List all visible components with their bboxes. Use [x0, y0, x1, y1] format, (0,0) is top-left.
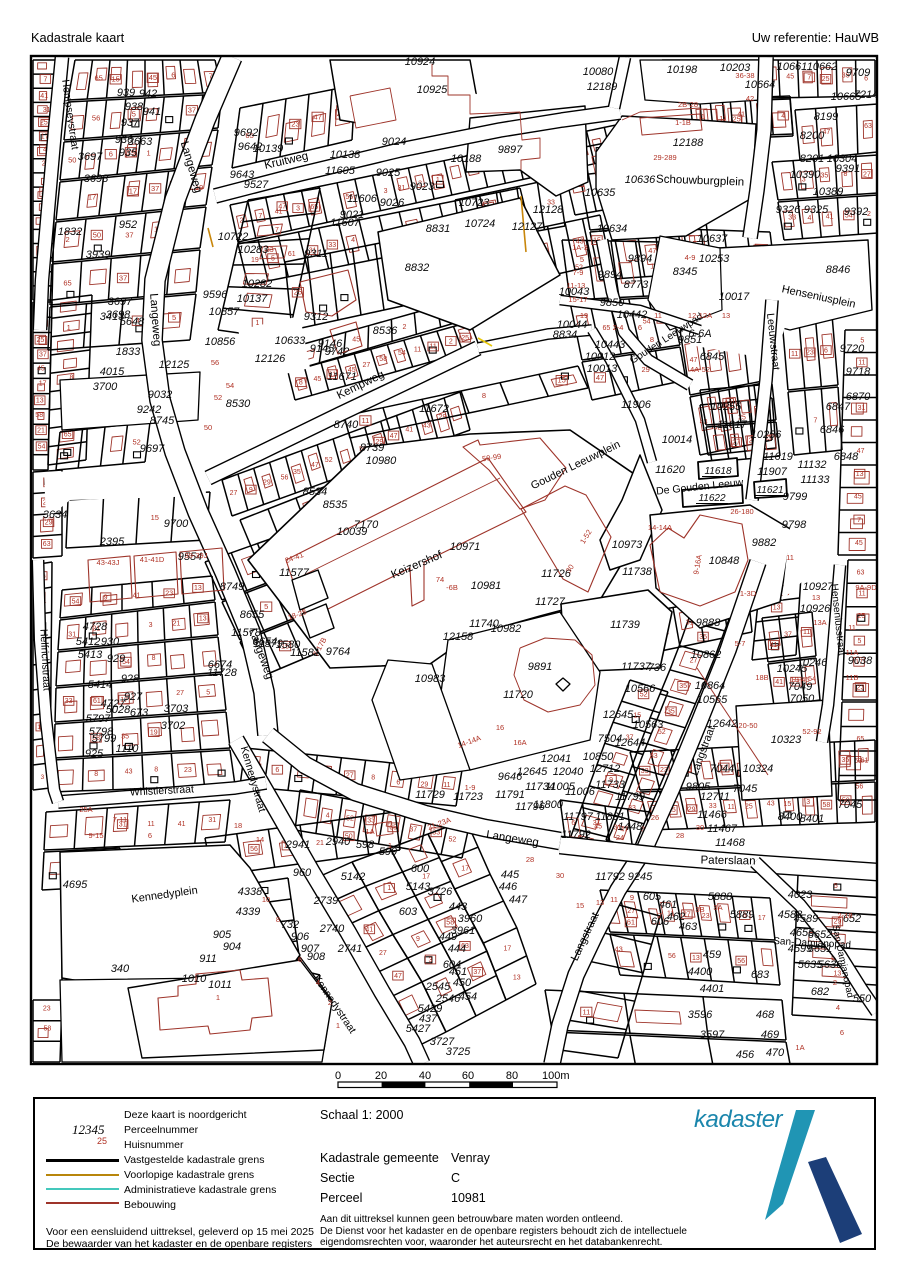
svg-text:1A: 1A: [365, 827, 374, 836]
svg-text:42: 42: [746, 94, 754, 103]
svg-text:8401: 8401: [800, 813, 824, 825]
svg-text:11-13: 11-13: [567, 281, 586, 290]
svg-text:11799: 11799: [615, 791, 645, 803]
svg-text:33: 33: [650, 753, 658, 760]
svg-text:25: 25: [822, 76, 830, 83]
svg-text:12126: 12126: [255, 353, 286, 365]
svg-text:13: 13: [812, 593, 820, 602]
svg-text:56: 56: [250, 846, 258, 853]
svg-text:11740: 11740: [469, 618, 500, 630]
svg-text:37: 37: [188, 106, 196, 115]
svg-text:58: 58: [44, 1026, 52, 1033]
svg-text:10442: 10442: [617, 309, 648, 321]
svg-text:63: 63: [43, 541, 51, 548]
svg-text:23: 23: [43, 1006, 51, 1013]
svg-text:28: 28: [676, 831, 684, 840]
svg-text:7: 7: [658, 911, 662, 920]
svg-text:928: 928: [121, 673, 140, 685]
svg-text:61: 61: [288, 251, 296, 258]
svg-text:10635: 10635: [585, 187, 616, 199]
svg-text:26-180: 26-180: [730, 507, 753, 516]
svg-text:3596: 3596: [688, 1009, 713, 1021]
svg-text:5: 5: [580, 255, 584, 264]
svg-text:4: 4: [808, 215, 812, 222]
svg-text:10137: 10137: [237, 293, 268, 305]
svg-text:1A-3: 1A-3: [572, 243, 588, 252]
svg-text:11: 11: [803, 629, 810, 636]
svg-text:3725: 3725: [446, 1046, 471, 1058]
svg-text:17: 17: [461, 866, 469, 873]
svg-text:2B-28: 2B-28: [678, 100, 698, 109]
svg-text:904: 904: [223, 941, 241, 953]
svg-text:10636: 10636: [625, 174, 656, 186]
svg-text:4023: 4023: [788, 889, 813, 901]
svg-text:24: 24: [616, 833, 624, 842]
svg-text:19: 19: [150, 729, 158, 736]
svg-text:3702: 3702: [161, 720, 185, 732]
svg-text:27: 27: [863, 171, 871, 178]
svg-text:6846: 6846: [820, 424, 845, 436]
svg-text:12125: 12125: [159, 359, 190, 371]
svg-text:50: 50: [204, 423, 212, 432]
svg-text:10850: 10850: [583, 751, 614, 763]
svg-text:600: 600: [411, 863, 430, 875]
svg-text:25: 25: [37, 337, 45, 344]
svg-text:9700: 9700: [164, 518, 189, 530]
svg-text:20: 20: [375, 1070, 387, 1082]
svg-text:2545: 2545: [425, 981, 451, 993]
svg-text:6: 6: [275, 767, 279, 774]
svg-text:456: 456: [736, 1049, 755, 1061]
svg-text:4339: 4339: [236, 906, 260, 918]
svg-text:9145: 9145: [310, 343, 335, 355]
svg-text:23: 23: [702, 913, 710, 920]
svg-text:3697: 3697: [78, 151, 103, 163]
svg-text:10722: 10722: [218, 231, 249, 243]
svg-text:11: 11: [147, 821, 154, 828]
svg-text:35: 35: [821, 173, 829, 180]
svg-text:2395: 2395: [99, 536, 125, 548]
svg-text:937: 937: [121, 117, 140, 129]
svg-text:9850: 9850: [600, 297, 625, 309]
svg-text:8: 8: [94, 771, 98, 778]
svg-text:65: 65: [389, 825, 397, 832]
svg-text:54: 54: [226, 381, 234, 390]
svg-text:37: 37: [125, 231, 133, 240]
svg-text:9527: 9527: [244, 179, 269, 191]
svg-text:27: 27: [363, 362, 371, 369]
svg-text:16: 16: [496, 723, 504, 732]
svg-text:463: 463: [679, 921, 698, 933]
svg-text:11605: 11605: [325, 165, 356, 177]
svg-text:10245: 10245: [777, 663, 808, 675]
svg-text:10724: 10724: [465, 218, 496, 230]
svg-text:3597: 3597: [700, 1029, 725, 1041]
svg-text:17: 17: [129, 187, 137, 196]
svg-text:10637: 10637: [697, 233, 728, 245]
svg-text:17: 17: [504, 945, 512, 952]
svg-text:10862: 10862: [691, 649, 722, 661]
svg-text:11468: 11468: [715, 837, 746, 849]
svg-text:5799: 5799: [92, 733, 116, 745]
svg-text:43: 43: [615, 945, 623, 954]
svg-text:5797: 5797: [86, 713, 111, 725]
svg-text:45: 45: [854, 494, 862, 501]
svg-text:1833: 1833: [116, 346, 141, 358]
svg-text:41: 41: [365, 927, 373, 934]
svg-text:8535: 8535: [323, 499, 348, 511]
svg-text:74: 74: [436, 575, 444, 584]
svg-text:450: 450: [453, 977, 472, 989]
svg-text:12041: 12041: [541, 753, 572, 765]
svg-text:11132: 11132: [798, 459, 827, 471]
svg-text:11A: 11A: [846, 648, 859, 657]
svg-text:11728: 11728: [207, 667, 238, 679]
svg-text:11133: 11133: [801, 474, 831, 486]
svg-text:6: 6: [638, 323, 642, 332]
svg-text:23: 23: [806, 350, 814, 357]
svg-text:4: 4: [836, 1003, 840, 1012]
svg-text:11792: 11792: [561, 829, 591, 841]
svg-text:9882: 9882: [752, 537, 776, 549]
svg-text:7-11: 7-11: [113, 815, 127, 824]
svg-text:31: 31: [398, 185, 406, 192]
svg-text:65: 65: [63, 278, 71, 287]
svg-text:1: 1: [216, 993, 220, 1002]
svg-text:27: 27: [732, 439, 740, 446]
svg-text:10390: 10390: [790, 169, 821, 181]
svg-text:8739: 8739: [360, 442, 384, 454]
svg-text:58: 58: [35, 412, 43, 419]
svg-text:5889: 5889: [730, 909, 754, 921]
svg-text:10012: 10012: [585, 351, 616, 363]
svg-text:673: 673: [130, 707, 149, 719]
svg-text:52: 52: [449, 837, 457, 844]
svg-text:2940: 2940: [325, 836, 351, 848]
svg-text:10927: 10927: [803, 581, 834, 593]
svg-text:6845: 6845: [700, 351, 725, 363]
svg-text:12040: 12040: [553, 766, 584, 778]
svg-text:9798: 9798: [782, 519, 807, 531]
svg-text:6651: 6651: [808, 943, 832, 955]
svg-text:10971: 10971: [450, 541, 481, 553]
svg-text:10039: 10039: [337, 526, 368, 538]
svg-text:4A-52: 4A-52: [690, 365, 710, 374]
svg-text:23: 23: [184, 767, 192, 774]
svg-text:9894: 9894: [628, 253, 652, 265]
svg-text:9391: 9391: [836, 163, 860, 175]
svg-text:9697: 9697: [140, 443, 165, 455]
svg-text:29: 29: [263, 479, 271, 486]
svg-text:47: 47: [278, 203, 286, 210]
svg-text:11907: 11907: [757, 466, 788, 478]
svg-text:52-92: 52-92: [802, 727, 821, 736]
svg-text:37: 37: [119, 273, 127, 282]
svg-text:45: 45: [352, 337, 360, 344]
svg-text:54: 54: [398, 350, 406, 357]
svg-text:7504: 7504: [598, 733, 622, 745]
svg-text:9245: 9245: [628, 871, 653, 883]
svg-text:935: 935: [119, 147, 138, 159]
svg-text:11739: 11739: [610, 619, 640, 631]
svg-text:11720: 11720: [503, 689, 534, 701]
svg-text:35: 35: [121, 733, 129, 740]
svg-text:58: 58: [379, 356, 387, 363]
svg-text:31: 31: [208, 817, 216, 824]
svg-text:1: 1: [388, 841, 392, 850]
svg-text:11: 11: [791, 351, 798, 358]
svg-text:8832: 8832: [405, 262, 429, 274]
svg-text:2: 2: [833, 978, 837, 987]
svg-text:35: 35: [842, 757, 850, 764]
svg-text:1-9: 1-9: [465, 783, 476, 792]
svg-text:11621: 11621: [756, 485, 783, 496]
svg-text:27: 27: [379, 950, 387, 957]
svg-text:10017: 10017: [719, 291, 750, 303]
svg-text:13: 13: [199, 616, 207, 623]
svg-text:54: 54: [72, 598, 80, 605]
svg-text:10856: 10856: [205, 336, 236, 348]
svg-text:10255: 10255: [711, 401, 742, 413]
svg-text:11: 11: [654, 311, 662, 320]
svg-text:43-43J: 43-43J: [97, 558, 120, 567]
svg-text:446: 446: [499, 881, 518, 893]
svg-text:11: 11: [430, 344, 437, 351]
svg-text:1: 1: [387, 885, 391, 892]
svg-text:469: 469: [761, 1029, 779, 1041]
svg-text:2741: 2741: [337, 943, 362, 955]
svg-text:6: 6: [171, 71, 175, 80]
svg-text:11606: 11606: [347, 193, 378, 205]
svg-text:4338: 4338: [238, 886, 263, 898]
svg-text:11672: 11672: [419, 403, 449, 415]
svg-text:1-1B: 1-1B: [675, 118, 691, 127]
svg-text:5: 5: [172, 313, 176, 322]
svg-text:10857: 10857: [209, 306, 240, 318]
svg-text:56: 56: [737, 958, 745, 965]
svg-text:6-6A: 6-6A: [688, 328, 711, 340]
svg-text:1: 1: [336, 1021, 340, 1030]
svg-text:63: 63: [864, 123, 872, 130]
svg-text:45: 45: [37, 366, 45, 373]
svg-text:37: 37: [473, 969, 481, 976]
svg-text:9032: 9032: [148, 389, 172, 401]
svg-text:4015: 4015: [100, 366, 125, 378]
svg-text:732: 732: [281, 919, 299, 931]
svg-text:37: 37: [784, 631, 792, 638]
svg-text:18B: 18B: [755, 673, 768, 682]
svg-text:9: 9: [249, 487, 253, 494]
svg-text:1: 1: [436, 177, 440, 184]
svg-text:11800: 11800: [533, 799, 564, 811]
svg-text:12711: 12711: [700, 791, 730, 803]
svg-text:9: 9: [416, 936, 420, 943]
svg-text:9646: 9646: [498, 771, 523, 783]
svg-text:8201: 8201: [800, 153, 824, 165]
svg-text:8749: 8749: [220, 581, 244, 593]
svg-text:33: 33: [65, 698, 73, 705]
svg-text:340: 340: [111, 963, 130, 975]
svg-text:10188: 10188: [451, 153, 482, 165]
svg-text:13A: 13A: [813, 618, 826, 627]
svg-text:9720: 9720: [840, 343, 865, 355]
svg-text:27: 27: [176, 690, 184, 697]
svg-text:6870: 6870: [846, 391, 871, 403]
svg-text:10198: 10198: [667, 64, 698, 76]
svg-text:43: 43: [767, 801, 775, 808]
svg-text:11619: 11619: [763, 451, 793, 463]
svg-text:61: 61: [93, 698, 101, 705]
svg-text:11: 11: [727, 804, 734, 811]
svg-text:6: 6: [109, 150, 113, 159]
svg-text:33: 33: [367, 818, 375, 825]
svg-text:11733: 11733: [595, 779, 626, 791]
svg-text:56: 56: [856, 783, 864, 790]
svg-text:12189: 12189: [587, 81, 618, 93]
svg-text:11577: 11577: [279, 567, 310, 579]
svg-text:3960: 3960: [458, 913, 483, 925]
svg-text:5-7: 5-7: [735, 639, 746, 648]
svg-text:10925: 10925: [417, 84, 448, 96]
svg-text:23: 23: [291, 120, 299, 129]
svg-text:61: 61: [627, 918, 635, 927]
svg-text:11: 11: [610, 895, 618, 904]
svg-text:8: 8: [152, 655, 156, 662]
svg-text:7: 7: [857, 517, 861, 524]
svg-text:11467: 11467: [707, 823, 738, 835]
svg-text:10980: 10980: [366, 455, 397, 467]
svg-text:15: 15: [151, 513, 159, 522]
svg-text:30: 30: [696, 823, 704, 832]
svg-text:5427: 5427: [406, 1023, 431, 1035]
svg-text:10324: 10324: [743, 763, 774, 775]
svg-text:19: 19: [580, 311, 588, 320]
svg-text:5648: 5648: [120, 316, 145, 328]
svg-text:908: 908: [307, 951, 326, 963]
svg-text:683: 683: [751, 969, 770, 981]
svg-text:20-50: 20-50: [738, 721, 757, 730]
svg-text:3A: 3A: [713, 903, 722, 912]
svg-text:3: 3: [384, 188, 388, 195]
svg-text:18: 18: [234, 821, 242, 830]
svg-text:13: 13: [513, 975, 521, 982]
svg-text:47: 47: [311, 462, 319, 469]
svg-text:56: 56: [211, 358, 219, 367]
svg-text:9025: 9025: [376, 167, 401, 179]
svg-text:10323: 10323: [771, 734, 802, 746]
svg-text:929: 929: [107, 653, 125, 665]
svg-text:2-18: 2-18: [837, 911, 852, 920]
svg-text:11727: 11727: [535, 596, 566, 608]
svg-text:9888: 9888: [696, 617, 721, 629]
svg-text:11791: 11791: [495, 789, 525, 801]
svg-text:1832: 1832: [58, 226, 82, 238]
svg-text:3703: 3703: [164, 703, 189, 715]
svg-text:14: 14: [256, 835, 264, 844]
svg-text:11622: 11622: [698, 493, 726, 504]
svg-text:3: 3: [149, 622, 153, 629]
svg-text:10566: 10566: [625, 683, 656, 695]
svg-text:10981: 10981: [471, 580, 502, 592]
svg-text:10983: 10983: [415, 673, 446, 685]
svg-text:7: 7: [43, 76, 47, 83]
svg-text:952: 952: [119, 219, 137, 231]
svg-text:45: 45: [314, 376, 322, 383]
svg-text:13: 13: [36, 398, 44, 405]
svg-text:682: 682: [811, 986, 829, 998]
svg-text:17: 17: [39, 380, 47, 387]
svg-text:9764: 9764: [326, 646, 350, 658]
svg-text:10662: 10662: [807, 61, 838, 73]
svg-text:11738: 11738: [622, 566, 653, 578]
svg-text:8530: 8530: [226, 398, 251, 410]
svg-text:13: 13: [856, 471, 864, 478]
svg-text:8: 8: [650, 335, 654, 344]
svg-text:45: 45: [855, 540, 863, 547]
svg-text:15: 15: [558, 376, 566, 385]
svg-text:7: 7: [807, 75, 811, 82]
svg-text:550: 550: [853, 993, 872, 1005]
svg-text:2: 2: [403, 324, 407, 331]
svg-text:41: 41: [775, 679, 783, 686]
svg-text:9-15: 9-15: [88, 831, 103, 840]
svg-text:11006: 11006: [565, 786, 596, 798]
svg-text:13: 13: [692, 955, 700, 962]
svg-text:8199: 8199: [814, 111, 838, 123]
svg-text:43: 43: [423, 423, 431, 430]
svg-text:56: 56: [92, 114, 100, 123]
svg-text:3634: 3634: [43, 509, 67, 521]
svg-text:5414: 5414: [88, 679, 112, 691]
svg-text:8773: 8773: [624, 279, 649, 291]
svg-text:9799: 9799: [783, 491, 807, 503]
svg-text:8740: 8740: [334, 419, 359, 431]
svg-text:941: 941: [143, 106, 161, 118]
svg-text:468: 468: [756, 1009, 775, 1021]
svg-text:10864: 10864: [695, 680, 726, 692]
svg-text:3939: 3939: [86, 249, 110, 261]
svg-text:11620: 11620: [655, 464, 686, 476]
svg-text:444: 444: [448, 943, 466, 955]
svg-text:942: 942: [139, 88, 157, 100]
svg-text:61: 61: [861, 757, 869, 764]
svg-text:9692: 9692: [234, 127, 258, 139]
svg-text:13: 13: [722, 311, 730, 320]
svg-text:3: 3: [429, 957, 433, 964]
svg-text:14-14A: 14-14A: [648, 523, 672, 532]
svg-text:10282: 10282: [242, 278, 273, 290]
svg-text:65: 65: [95, 74, 103, 83]
svg-text:56: 56: [281, 475, 289, 482]
svg-text:10253: 10253: [699, 253, 730, 265]
svg-text:21: 21: [173, 620, 181, 627]
svg-text:11: 11: [362, 416, 370, 425]
svg-text:47: 47: [313, 112, 321, 121]
svg-text:8: 8: [482, 391, 486, 400]
svg-text:2: 2: [449, 338, 453, 345]
svg-text:65: 65: [857, 736, 865, 743]
svg-text:65: 65: [64, 431, 72, 438]
svg-text:33: 33: [328, 242, 336, 249]
svg-text:37: 37: [151, 184, 159, 193]
svg-text:960: 960: [293, 867, 312, 879]
svg-text:2941: 2941: [285, 839, 310, 851]
svg-text:50: 50: [93, 230, 101, 239]
svg-text:11466: 11466: [697, 809, 728, 821]
svg-text:10080: 10080: [583, 66, 614, 78]
svg-text:Paterslaan: Paterslaan: [700, 855, 755, 868]
svg-text:13: 13: [773, 605, 781, 612]
